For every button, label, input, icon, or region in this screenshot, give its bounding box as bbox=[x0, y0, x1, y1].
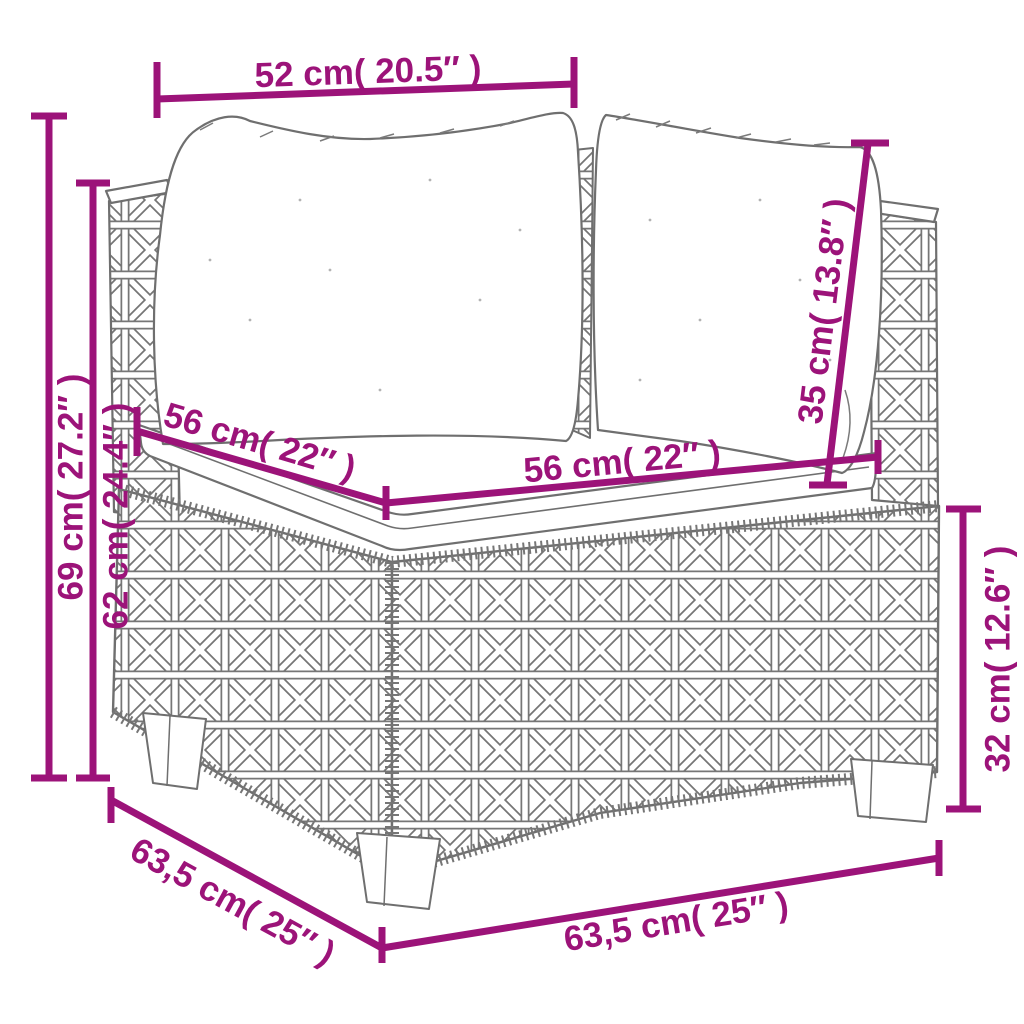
back-cushion-left bbox=[154, 113, 583, 444]
leg-front bbox=[357, 833, 440, 909]
dimension-overall-height: 69 cm( 27.2″ ) bbox=[31, 116, 90, 778]
dimension-base-height: 32 cm( 12.6″ ) bbox=[946, 509, 1017, 809]
dimension-top-width: 52 cm( 20.5″ ) bbox=[157, 48, 574, 118]
leg-right bbox=[851, 759, 933, 822]
dimension-label-overall-depth: 63,5 cm( 25″ ) bbox=[124, 830, 342, 973]
dimension-diagram: 52 cm( 20.5″ ) 69 cm( 27.2″ ) 62 cm( 24.… bbox=[0, 0, 1024, 1024]
dimension-label-base-height: 32 cm( 12.6″ ) bbox=[978, 546, 1017, 773]
dimension-label-armrest-height: 62 cm( 24.4″ ) bbox=[96, 403, 135, 630]
dimension-label-overall-width: 63,5 cm( 25″ ) bbox=[561, 884, 791, 959]
dimension-label-top-width: 52 cm( 20.5″ ) bbox=[254, 48, 482, 95]
product-illustration: 52 cm( 20.5″ ) 69 cm( 27.2″ ) 62 cm( 24.… bbox=[0, 0, 1024, 1024]
sofa-base-left-face bbox=[113, 489, 392, 874]
sofa-base-right-face bbox=[392, 506, 939, 874]
dimension-label-overall-height: 69 cm( 27.2″ ) bbox=[51, 374, 90, 601]
leg-left bbox=[143, 713, 206, 789]
